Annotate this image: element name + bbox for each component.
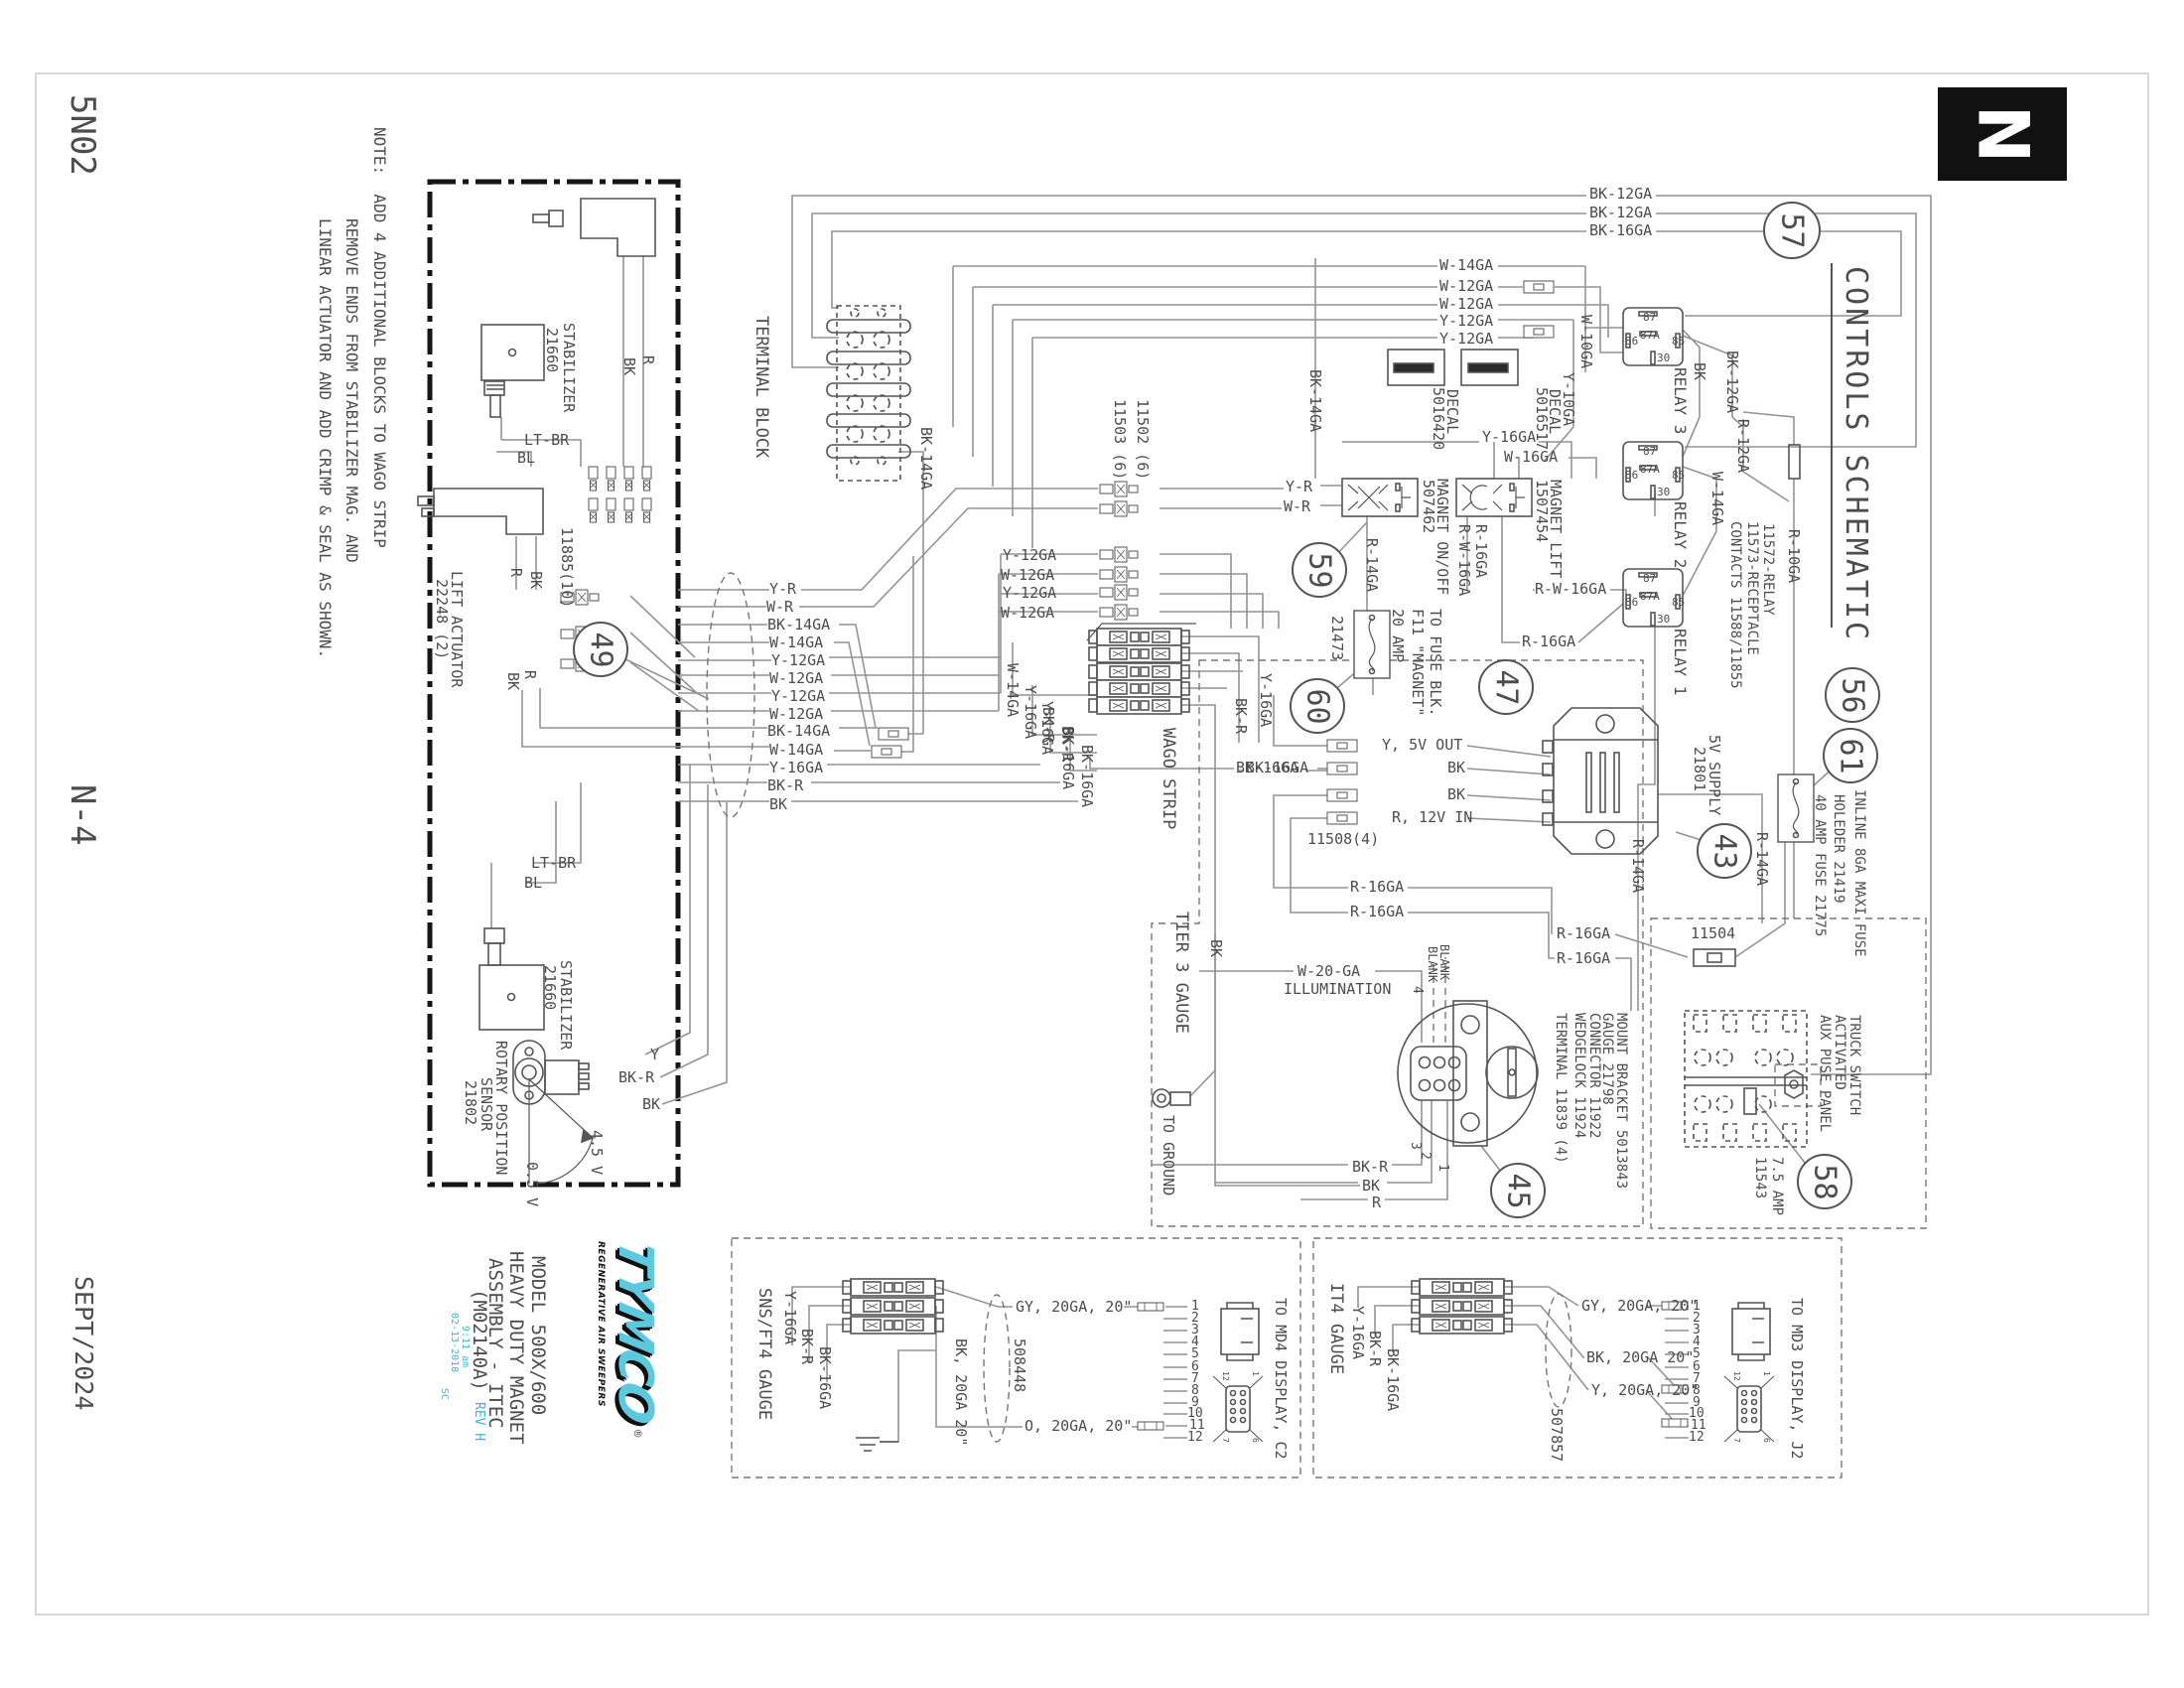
wire-r-w-16ga-h: R-W-16GA [1535,582,1606,598]
wire-r-12ga-relay: R-12GA [1734,419,1750,473]
aux-fuse-part: 11543 [1752,1157,1767,1198]
sheet-code: 5N02 [64,94,99,176]
wire-y-12ga-b: Y-12GA [771,689,825,705]
it4-pin-12: 12 [1689,1431,1705,1445]
tier3-pin-2: 2 [1418,1152,1432,1160]
wire-r-tier3: R [1372,1196,1381,1211]
wire-bk-16ga-it4: BK-16GA [1384,1348,1400,1411]
wire-bk-r-wago-r: BK-R [1232,698,1248,734]
callout-58: 58 [1797,1154,1852,1209]
drawing-title: CONTROLS SCHEMATIC [1841,266,1872,642]
wire-r-10ga: R-10GA [1785,529,1801,583]
wire-bk-16ga-top: BK-16GA [1589,223,1652,239]
note-line-2: REMOVE ENDS FROM STABILIZER MAG. AND [342,218,359,563]
relay3-pin-30: 30 [1657,352,1670,364]
part-11503: 11503 (6) [1111,399,1127,480]
wire-w-12ga-d: W-12GA [1001,606,1054,622]
wire-bk-12ga-1: BK-12GA [1589,187,1652,203]
part-11502: 11502 (6) [1134,399,1150,480]
wire-bk-r-tier3: BK-R [1352,1160,1388,1176]
it4-gauge-name: IT4 GAUGE [1326,1283,1344,1374]
to-ground: TO GROUND [1160,1115,1175,1196]
wire-lt-br-1: LT-BR [524,433,569,449]
wire-bl-2: BL [524,876,542,892]
relay2-pin-86: 86 [1625,470,1638,482]
callout-59: 59 [1292,542,1347,598]
part-11508: 11508(4) [1307,832,1379,848]
fuse-holder-note-1: INLINE 8GA MAXI FUSE [1851,789,1866,957]
part-11504: 11504 [1691,926,1735,942]
wire-gy-20ga-sns: GY, 20GA, 20" [1016,1300,1132,1316]
stabilizer1-part: 21660 [543,328,559,372]
wago-strip-name: WAGO STRIP [1159,728,1176,829]
wire-y-12ga-d: Y-12GA [1003,586,1056,602]
wire-r-act3: R [521,670,537,679]
sensor-0v5: 0.5 V [523,1162,539,1206]
wire-w-r-mag: W-R [1284,499,1310,515]
relay1-pin-30: 30 [1657,614,1670,626]
aux-panel-note-3: AUX PUSE PANEL [1817,1015,1832,1132]
wire-bk-relay: BK [1691,362,1706,380]
callout-60: 60 [1290,678,1345,734]
to-md3-display: TO MD3 DISPLAY, J2 [1788,1298,1804,1460]
gauge-note-5: TERMINAL 11839 (4) [1553,1013,1568,1164]
logo-registered: ® [630,1430,643,1437]
tier3-pin-4: 4 [1410,986,1424,994]
wire-bk-5v-1: BK [1447,761,1465,776]
rev-label: REV H [472,1402,485,1441]
wire-w-16ga-mag: W-16GA [1504,450,1558,466]
sensor-4v5: 4.5 V [588,1130,604,1175]
gauge-note-1: MOUNT BRACKET 5013843 [1613,1013,1628,1189]
relay3-pin-86: 86 [1625,336,1638,348]
sns-conn-12: 12 [1221,1371,1229,1381]
decal1-part: 5016420 [1430,387,1445,450]
terminal-part-11885: 11885(10) [558,527,574,608]
relay-note-3: CONTACTS 11588/11855 [1727,521,1742,689]
note-line-3: LINEAR ACTUATOR AND ADD CRIMP & SEAL AS … [316,218,333,658]
wire-bk-sensor: BK [642,1097,660,1113]
wire-r-16ga-v: R-16GA [1472,524,1488,578]
wire-r-16ga-a: R-16GA [1350,880,1404,896]
wire-bk-act2: BK [527,571,543,589]
lift-actuator-part: 22248 (2) [433,579,449,659]
zone-letter-box: N [1938,87,2067,181]
wire-bk-tier3b: BK [1362,1179,1380,1195]
callout-43: 43 [1697,823,1752,879]
wire-y-r: Y-R [769,582,796,598]
sns-conn-6: 6 [1251,1438,1259,1443]
fuse-note-2: F11 "MAGNET" [1409,609,1425,716]
wire-y-12ga-top2: Y-12GA [1439,332,1493,348]
wire-w-14ga-v: W-14GA [1004,663,1020,717]
fuse-holder-note-3: 40 AMP FUSE 21775 [1812,794,1827,936]
wire-y-16ga-sns: Y-16GA [781,1291,797,1344]
it4-conn-6: 6 [1762,1438,1770,1443]
wire-y-16ga-v: Y-16GA [1022,685,1037,739]
wire-bk-14ga-a: BK-14GA [767,618,830,633]
wire-y-16ga-it4: Y-16GA [1349,1306,1365,1359]
schematic-sheet: N TYMCO REGENERATIVE AIR SWEEPERS 5N02N-… [0,0,2184,1688]
wire-r-16ga-c: R-16GA [1557,926,1610,942]
wire-lt-br-2: LT-BR [531,856,576,872]
aux-fuse-amp: 7.5 AMP [1769,1157,1784,1215]
wire-y-5v-out: Y, 5V OUT [1382,738,1462,754]
wire-r-14ga-supply: R-14GA [1753,832,1769,886]
wire-bk-16ga-5v: BK-16GA [1236,761,1298,776]
wire-r-14ga-mag: R-14GA [1363,538,1379,592]
magnet-onoff-part: 507462 [1420,480,1435,533]
wire-y-sensor: Y [650,1048,659,1063]
wire-bk-r-sensor: BK-R [618,1070,654,1086]
relay-note-1: 11572-RELAY [1760,523,1775,616]
cable-508448: 508448 [1011,1338,1026,1392]
stabilizer2-name: STABILIZER [557,960,573,1050]
model-line-1: MODEL 500X/600 [527,1256,547,1415]
relay3-pin-87: 87 [1643,312,1656,324]
wire-y-16ga-wago-r: Y-16GA [1257,673,1273,727]
wire-bk-12ga-2: BK-12GA [1589,206,1652,221]
fuse-note-1: TO FUSE BLK. [1427,609,1442,716]
tier3-pin-3: 3 [1408,1142,1422,1150]
sns-gauge-name: SNS/FT4 GAUGE [754,1288,772,1420]
callout-47: 47 [1478,659,1534,715]
callout-49: 49 [573,622,628,677]
relay1-pin-86: 86 [1625,597,1638,609]
zone-letter: N [1962,105,2043,164]
wire-bk-16ga-wago-l: BK-16GA [1078,745,1094,807]
wire-r-16ga-h1: R-16GA [1522,634,1575,650]
wire-r-14ga-panel: R-14GA [1629,839,1645,893]
wire-y-12ga-a: Y-12GA [771,653,825,669]
wire-bk-act3: BK [504,672,520,690]
sns-conn-1: 1 [1251,1371,1259,1376]
rev-initials: SC [439,1388,450,1400]
cable-507857: 507857 [1548,1408,1564,1462]
relay-note-2: 11573-RECEPTACLE [1744,521,1759,655]
wire-w-r: W-R [766,600,793,616]
relay2-name: RELAY 2 [1671,501,1688,568]
pin-blank-2: BLANK [1437,944,1450,980]
wire-y-16ga-wago-l: Y-16GA [1038,701,1054,755]
wire-y-16ga-a: Y-16GA [769,761,823,776]
wire-bk-14ga-tb: BK-14GA [917,427,933,490]
relay2-pin-87: 87 [1643,446,1656,458]
tymco-logo-wordmark: TYMCO [608,1235,663,1456]
wire-bk-5v-2: BK [1447,787,1465,803]
fuse-holder-note-2: HOLEDER 21419 [1831,794,1845,904]
wire-bk-20ga-it4: BK, 20GA 20" [1586,1350,1694,1366]
terminal-block-name: TERMINAL BLOCK [751,316,769,458]
wire-bk-r-it4: BK-R [1366,1331,1382,1366]
wire-r-16ga-b: R-16GA [1350,905,1404,920]
rev-time: 9:11 am [460,1326,471,1367]
wire-o-20ga-sns: O, 20GA, 20" [1024,1419,1132,1435]
rotary-sensor-part: 21802 [462,1080,478,1125]
aux-panel-note-2: ACTIVATED [1832,1015,1846,1090]
relay2-pin-30: 30 [1657,487,1670,498]
wire-r-w-16ga-v: R-W-16GA [1455,524,1471,596]
wire-w-12ga-top2: W-12GA [1439,297,1493,313]
wire-bk-r-a: BK-R [767,778,803,794]
relay1-pin-85: 85 [1672,597,1685,609]
it4-conn-1: 1 [1762,1371,1770,1376]
wire-w-14ga-b: W-14GA [769,743,823,759]
wire-y-12ga-c: Y-12GA [1003,548,1056,564]
wire-bk-r-wago-l: BK-R [1058,726,1074,762]
wire-w-20ga: W-20-GA [1297,964,1360,980]
wire-illumination: ILLUMINATION [1284,982,1391,998]
stabilizer2-part: 21660 [541,965,557,1010]
sns-conn-7: 7 [1221,1438,1229,1443]
callout-56: 56 [1825,667,1880,723]
it4-conn-12: 12 [1732,1371,1740,1381]
relay3-pin-85: 85 [1672,336,1685,348]
wire-gy-20ga-it4: GY, 20GA, 20" [1581,1299,1698,1315]
wire-w-12ga-b: W-12GA [769,707,823,723]
callout-61: 61 [1823,728,1878,783]
wire-y-20ga-it4: Y, 20GA, 20" [1591,1383,1699,1399]
relay1-pin-87a: 87A [1640,591,1660,603]
wire-w-14ga-top: W-14GA [1439,258,1493,274]
relay2-pin-85: 85 [1672,470,1685,482]
wire-r-act2: R [507,568,523,577]
callout-45: 45 [1490,1163,1546,1218]
wire-w-12ga-c: W-12GA [1001,568,1054,584]
tymco-logo: TYMCO REGENERATIVE AIR SWEEPERS [578,1241,663,1450]
to-md4-display: TO MD4 DISPLAY, C2 [1272,1298,1288,1460]
tier3-pin-1: 1 [1435,1164,1449,1172]
note-line-1: NOTE: ADD 4 ADDITIONAL BLOCKS TO WAGO ST… [370,127,387,548]
wire-w-14ga-relay: W-14GA [1708,472,1724,525]
wire-w-12ga-top1: W-12GA [1439,279,1493,295]
gauge-note-4: WEDGELOCK 11924 [1571,1013,1586,1138]
callout-57: 57 [1763,202,1821,259]
wire-bk-act1: BK [620,357,636,375]
supply-part: 21801 [1691,747,1706,791]
wire-bk-tier3: BK [1207,939,1223,957]
relay1-pin-87: 87 [1643,573,1656,585]
model-line-2: HEAVY DUTY MAGNET [505,1251,525,1444]
fuse-note-3: 20 AMP [1389,609,1405,662]
magnet-lift-part: 1507454 [1533,480,1549,542]
relay3-pin-87a: 87A [1640,330,1660,342]
wire-runs [491,196,1931,1442]
sns-pin-12: 12 [1187,1431,1203,1445]
wire-bk-14ga-b: BK-14GA [767,724,830,740]
wire-bk-14ga-mag: BK-14GA [1306,369,1322,432]
wire-r-16ga-d: R-16GA [1557,951,1610,967]
wire-r-act1: R [639,355,655,364]
stabilizer1-name: STABILIZER [560,323,576,412]
wire-bk-16ga-sns: BK-16GA [816,1346,832,1409]
wire-w-12ga-a: W-12GA [769,671,823,687]
wire-y-r-mag: Y-R [1286,480,1312,495]
wire-r-12v-in: R, 12V IN [1392,810,1472,826]
rev-date: 02-13-2018 [449,1313,460,1372]
it4-conn-7: 7 [1732,1438,1740,1443]
wire-bk-20ga-sns: BK, 20GA 20" [952,1338,968,1446]
wire-bk-a: BK [769,797,787,813]
wire-bk-r-sns: BK-R [798,1329,814,1364]
relay2-pin-87a: 87A [1640,464,1660,476]
tier3-gauge-name: TIER 3 GAUGE [1171,912,1189,1034]
relay1-name: RELAY 1 [1671,629,1688,695]
relay3-name: RELAY 3 [1671,367,1688,434]
rotary-sensor-name2: SENSOR [478,1077,493,1131]
model-line-4: (M02140A) [469,1289,488,1391]
wire-bk-12ga-relay: BK-12GA [1723,351,1739,413]
wire-y-12ga-top1: Y-12GA [1439,314,1493,330]
wire-bl-1: BL [517,451,535,467]
wire-w-14ga-a: W-14GA [769,635,823,651]
aux-panel-note-1: TRUCK SWITCH [1846,1015,1861,1115]
wire-y-16ga-mag: Y-16GA [1482,430,1536,446]
sheet-grid-ref: N-4 [64,784,99,845]
sheet-date: SEPT/2024 [70,1276,96,1410]
fuse-21473: 21473 [1328,616,1344,660]
gauge-note-3: CONNECTOR 11922 [1586,1013,1601,1138]
wire-w-10ga: W-10GA [1577,315,1593,368]
tymco-logo-tagline: REGENERATIVE AIR SWEEPERS [596,1241,606,1450]
